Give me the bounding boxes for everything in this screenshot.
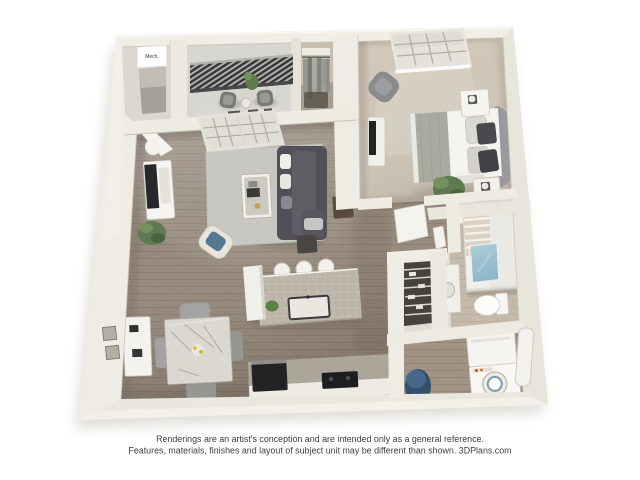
svg-text:Mech.: Mech. xyxy=(145,54,159,60)
svg-text:Features, materials, finishes: Features, materials, finishes and layout… xyxy=(128,446,511,456)
svg-text:Renderings are an artist's con: Renderings are an artist's conception an… xyxy=(156,434,484,444)
